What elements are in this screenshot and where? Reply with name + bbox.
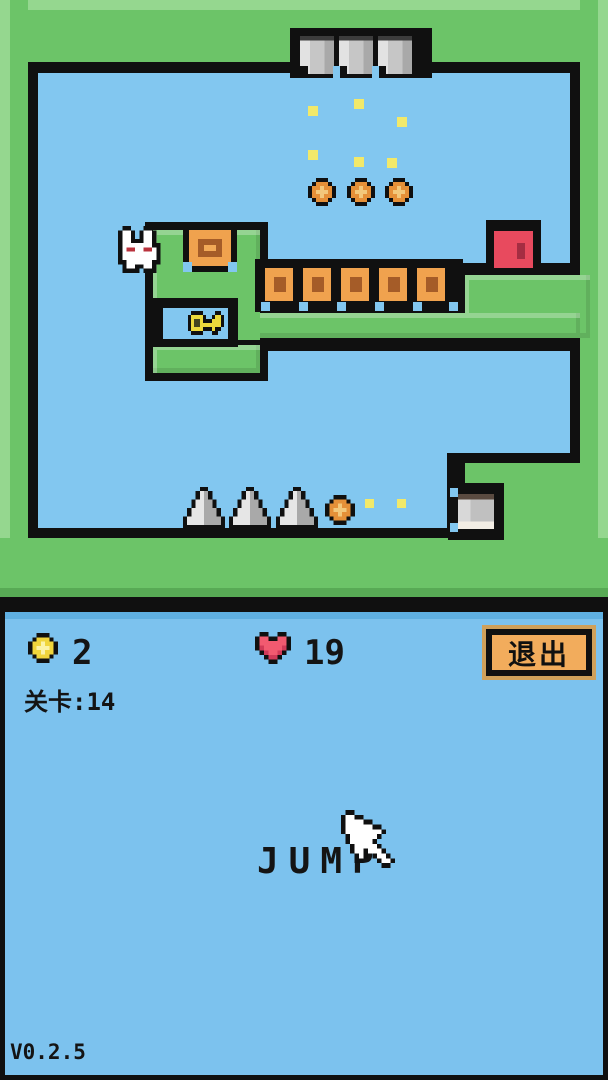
coin-icon	[347, 178, 375, 206]
door-icon	[494, 231, 533, 268]
coin-icon	[385, 178, 413, 206]
cursor-icon	[341, 810, 395, 868]
crate-foot-gap	[228, 262, 237, 272]
pocket-gap	[450, 523, 458, 532]
platform-arm	[230, 313, 580, 338]
coin-icon	[308, 178, 336, 206]
crate-icon	[297, 262, 337, 307]
particle-icon	[387, 158, 397, 168]
slot-gap	[333, 66, 340, 78]
crate-icon	[259, 262, 299, 307]
level-indicator: 关卡:14	[24, 682, 115, 717]
wall-left	[0, 0, 28, 597]
crate-foot-gap	[337, 302, 346, 311]
slot-gap	[372, 66, 379, 78]
bunny-icon	[118, 226, 165, 273]
coin-count: 2	[72, 633, 92, 673]
version-label: V0.2.5	[10, 1040, 86, 1064]
crate-foot-gap	[449, 302, 458, 311]
particle-icon	[397, 499, 406, 508]
crate-foot-gap	[375, 302, 384, 311]
spike-icon	[183, 487, 225, 529]
key-icon	[188, 311, 224, 335]
exit-button[interactable]: 退出	[486, 629, 592, 676]
stone-block-icon	[378, 36, 412, 74]
crate-icon	[335, 262, 375, 307]
particle-icon	[308, 150, 318, 160]
stone-block-icon	[300, 36, 334, 74]
platform-bottom-bar	[153, 345, 260, 373]
particle-icon	[397, 117, 407, 127]
coin-counter-icon	[28, 633, 58, 663]
coin-icon	[325, 495, 355, 525]
life-count: 19	[304, 633, 345, 673]
spike-icon	[276, 487, 318, 529]
stone-block-icon	[458, 494, 494, 529]
door-knob	[517, 243, 525, 259]
hud-top-shade	[5, 612, 603, 619]
particle-icon	[354, 99, 364, 109]
crate-foot-gap	[413, 302, 422, 311]
crate-foot-gap	[183, 262, 192, 272]
particle-icon	[365, 499, 374, 508]
spike-icon	[229, 487, 271, 529]
pocket-gap	[450, 488, 458, 497]
game-screen: 2 19 退出 关卡:14 JUMP V0.2.5	[0, 0, 608, 1080]
particle-icon	[308, 106, 318, 116]
particle-icon	[354, 157, 364, 167]
crate-foot-gap	[261, 302, 270, 311]
crate-icon	[373, 262, 413, 307]
crate-icon	[411, 262, 451, 307]
crate-foot-gap	[299, 302, 308, 311]
stone-block-icon	[339, 36, 373, 74]
heart-icon	[255, 632, 291, 664]
